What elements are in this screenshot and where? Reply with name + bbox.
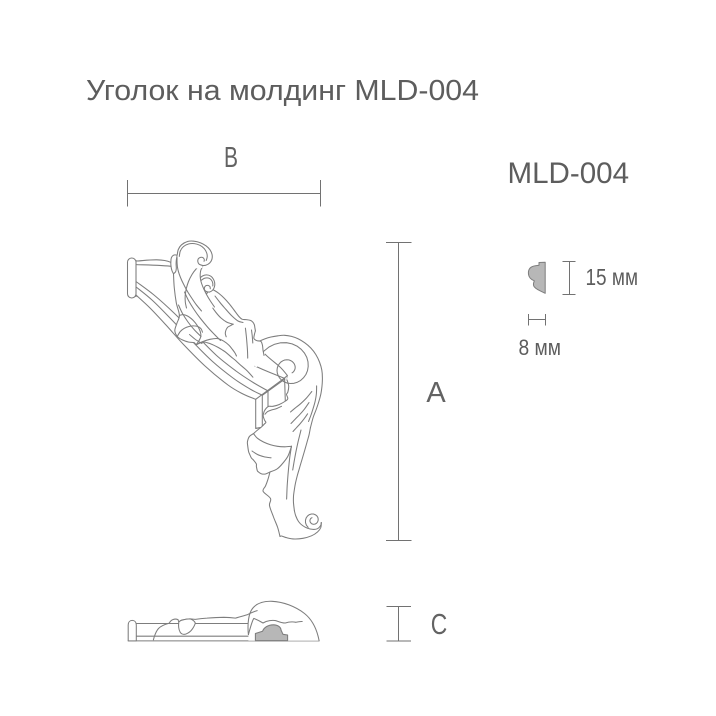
svg-text:B: B (224, 142, 238, 174)
svg-text:MLD-004: MLD-004 (508, 157, 630, 190)
svg-text:8 мм: 8 мм (519, 335, 562, 360)
svg-text:15 мм: 15 мм (586, 264, 639, 290)
svg-text:Уголок на молдинг MLD-004: Уголок на молдинг MLD-004 (86, 75, 479, 107)
svg-text:A: A (426, 377, 446, 409)
svg-text:C: C (431, 609, 448, 641)
